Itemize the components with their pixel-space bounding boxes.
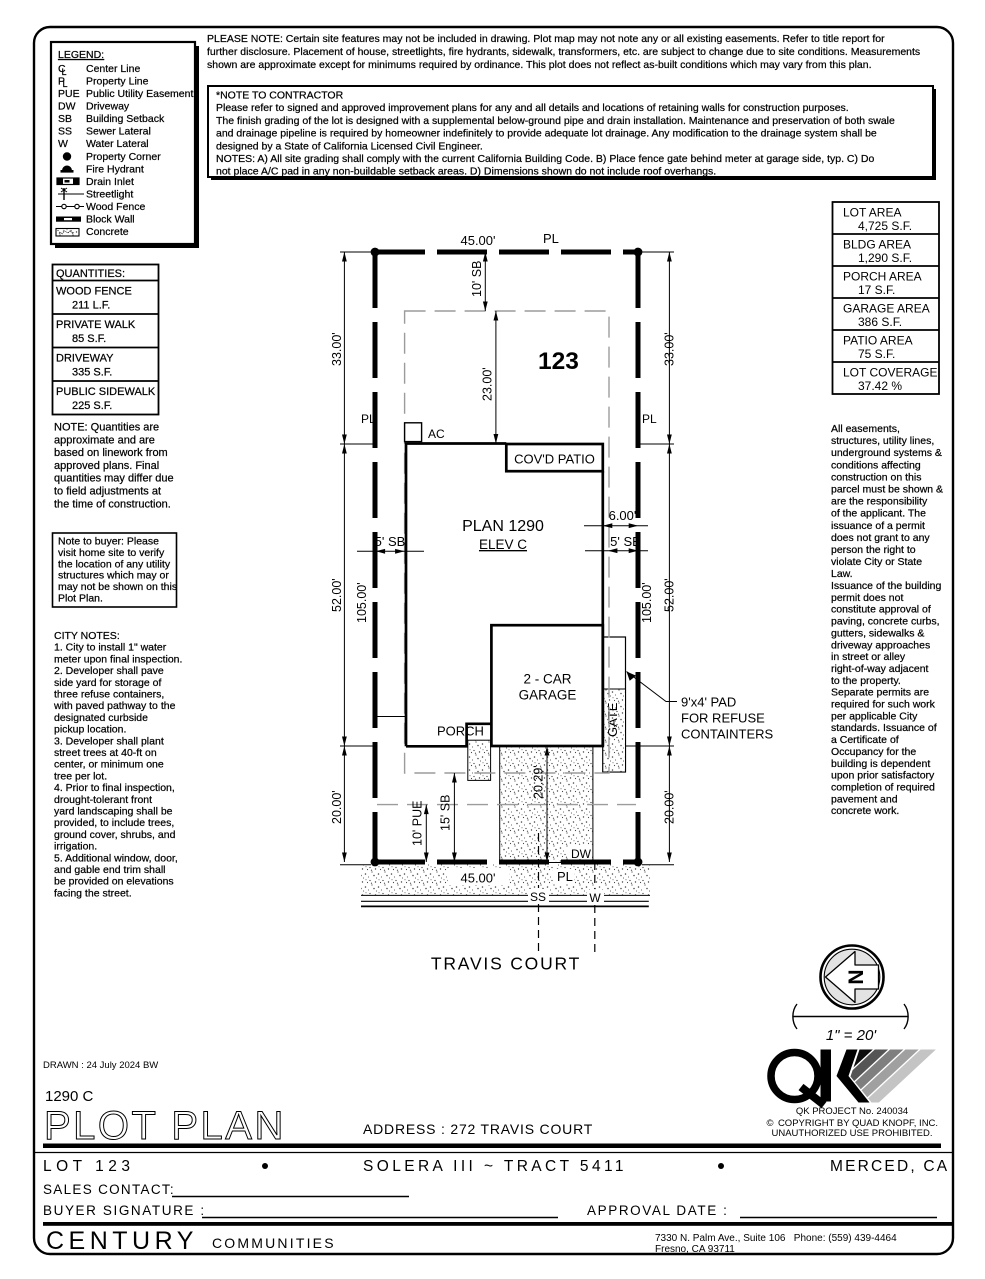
svg-text:GARAGE AREA: GARAGE AREA bbox=[843, 302, 930, 316]
svg-text:pickup location.: pickup location. bbox=[54, 724, 126, 736]
svg-text:construction on this: construction on this bbox=[831, 471, 921, 483]
svg-text:LOT 123: LOT 123 bbox=[43, 1158, 135, 1175]
svg-text:Sewer Lateral: Sewer Lateral bbox=[86, 126, 151, 138]
svg-text:1. City to install 1" water: 1. City to install 1" water bbox=[54, 642, 167, 654]
svg-text:386 S.F.: 386 S.F. bbox=[858, 315, 902, 329]
svg-text:MERCED, CA: MERCED, CA bbox=[830, 1158, 949, 1175]
svg-text:not place A/C pad in any non-b: not place A/C pad in any non-buildable s… bbox=[216, 166, 716, 178]
svg-text:DW: DW bbox=[571, 847, 592, 861]
svg-text:85 S.F.: 85 S.F. bbox=[72, 333, 106, 345]
svg-text:to the property.: to the property. bbox=[831, 675, 901, 687]
svg-text:right-of-way adjacent: right-of-way adjacent bbox=[831, 663, 929, 675]
svg-text:PRIVATE WALK: PRIVATE WALK bbox=[56, 319, 136, 331]
svg-text:QUANTITIES:: QUANTITIES: bbox=[56, 268, 125, 280]
svg-text:per applicable City: per applicable City bbox=[831, 710, 918, 722]
svg-text:designed by a State of Califor: designed by a State of California Licens… bbox=[216, 140, 483, 152]
svg-text:center, or minimum one: center, or minimum one bbox=[54, 759, 164, 771]
svg-text:in street or alley: in street or alley bbox=[831, 651, 906, 663]
svg-text:WOOD FENCE: WOOD FENCE bbox=[56, 286, 132, 298]
svg-text:CITY NOTES:: CITY NOTES: bbox=[54, 630, 120, 642]
svg-text:Issuance of the building: Issuance of the building bbox=[831, 580, 941, 592]
svg-text:NOTES: A) All site grading sh: NOTES: A) All site grading shall comply … bbox=[216, 153, 874, 165]
svg-text:DRIVEWAY: DRIVEWAY bbox=[56, 353, 114, 365]
svg-text:tree per lot.: tree per lot. bbox=[54, 770, 107, 782]
svg-text:W: W bbox=[589, 891, 601, 905]
svg-text:a Certificate of: a Certificate of bbox=[831, 734, 899, 746]
svg-text:yard landscaping shall be: yard landscaping shall be bbox=[54, 806, 173, 818]
svg-text:FOR REFUSE: FOR REFUSE bbox=[681, 711, 765, 726]
svg-text:required for such work: required for such work bbox=[831, 699, 936, 711]
svg-text:conditions affecting: conditions affecting bbox=[831, 459, 921, 471]
svg-text:The finish grading of the lot: The finish grading of the lot is designe… bbox=[216, 115, 895, 127]
svg-text:does not grant to any: does not grant to any bbox=[831, 532, 930, 544]
svg-text:designated curbside: designated curbside bbox=[54, 712, 148, 724]
svg-text:PLAN 1290: PLAN 1290 bbox=[462, 518, 544, 535]
svg-text:AC: AC bbox=[428, 427, 445, 441]
svg-text:6.00': 6.00' bbox=[609, 508, 637, 523]
svg-text:SS: SS bbox=[530, 890, 546, 904]
svg-text:PL: PL bbox=[642, 412, 657, 426]
svg-text:Property Corner: Property Corner bbox=[86, 151, 161, 163]
svg-text:Separate permits are: Separate permits are bbox=[831, 687, 929, 699]
svg-text:completion of required: completion of required bbox=[831, 782, 935, 794]
svg-text:2. Developer shall pave: 2. Developer shall pave bbox=[54, 665, 164, 677]
svg-text:QK PROJECT No. 240034: QK PROJECT No. 240034 bbox=[796, 1106, 908, 1117]
svg-text:1" = 20': 1" = 20' bbox=[826, 1027, 877, 1044]
svg-text:PL: PL bbox=[361, 412, 376, 426]
svg-text:constitute approval of: constitute approval of bbox=[831, 604, 931, 616]
svg-text:may not be shown on this: may not be shown on this bbox=[58, 581, 177, 593]
svg-text:approved plans. Final: approved plans. Final bbox=[54, 460, 159, 472]
svg-text:BUYER SIGNATURE :: BUYER SIGNATURE : bbox=[43, 1203, 206, 1218]
svg-text:PUE: PUE bbox=[58, 88, 80, 100]
svg-text:15' SB: 15' SB bbox=[439, 795, 453, 831]
svg-text:Building Setback: Building Setback bbox=[86, 113, 165, 125]
svg-text:SALES CONTACT:: SALES CONTACT: bbox=[43, 1182, 175, 1197]
svg-text:10' SB: 10' SB bbox=[470, 261, 484, 297]
svg-text:20.29': 20.29' bbox=[532, 765, 546, 799]
svg-text:facing the street.: facing the street. bbox=[54, 887, 132, 899]
svg-text:structures which may or: structures which may or bbox=[58, 570, 169, 582]
svg-text:upon prior satisfactory: upon prior satisfactory bbox=[831, 770, 935, 782]
svg-text:Center Line: Center Line bbox=[86, 63, 140, 75]
svg-text:ELEV C: ELEV C bbox=[479, 537, 527, 552]
svg-text:street trees at 40-ft on: street trees at 40-ft on bbox=[54, 747, 157, 759]
svg-text:Law.: Law. bbox=[831, 568, 853, 580]
svg-text:building is dependent: building is dependent bbox=[831, 758, 930, 770]
svg-text:1290 C: 1290 C bbox=[45, 1088, 94, 1105]
svg-text:CONTAINTERS: CONTAINTERS bbox=[681, 727, 774, 742]
svg-text:20.00': 20.00' bbox=[663, 790, 677, 824]
svg-text:PORCH: PORCH bbox=[437, 724, 484, 739]
svg-text:PL: PL bbox=[557, 869, 573, 884]
svg-text:shown are approximate except f: shown are approximate except for minimum… bbox=[207, 59, 872, 71]
svg-text:APPROVAL DATE :: APPROVAL DATE : bbox=[587, 1203, 729, 1218]
svg-text:17 S.F.: 17 S.F. bbox=[858, 283, 895, 297]
svg-text:COV'D PATIO: COV'D PATIO bbox=[514, 452, 595, 467]
svg-text:W: W bbox=[58, 138, 68, 150]
svg-text:23.00': 23.00' bbox=[481, 367, 495, 401]
svg-text:37.42 %: 37.42 % bbox=[858, 379, 902, 393]
svg-text:paving, concrete curbs,: paving, concrete curbs, bbox=[831, 616, 940, 628]
svg-text:45.00': 45.00' bbox=[460, 233, 495, 248]
svg-text:DRAWN : 24 July 2024 BW: DRAWN : 24 July 2024 BW bbox=[43, 1060, 158, 1071]
svg-text:SOLERA III ~ TRACT 5411: SOLERA III ~ TRACT 5411 bbox=[363, 1158, 627, 1175]
svg-text:CENTURY: CENTURY bbox=[46, 1227, 198, 1255]
svg-text:75 S.F.: 75 S.F. bbox=[858, 347, 895, 361]
svg-text:pavement and: pavement and bbox=[831, 793, 898, 805]
svg-text:All easements,: All easements, bbox=[831, 423, 900, 435]
svg-text:drought-tolerant front: drought-tolerant front bbox=[54, 794, 152, 806]
svg-text:based on linework from: based on linework from bbox=[54, 447, 168, 459]
svg-text:and gable end trim shall: and gable end trim shall bbox=[54, 864, 166, 876]
svg-text:ground cover, shrubs, and: ground cover, shrubs, and bbox=[54, 829, 176, 841]
svg-text:PLOT PLAN: PLOT PLAN bbox=[44, 1104, 286, 1148]
svg-text:52.00': 52.00' bbox=[663, 578, 677, 612]
svg-text:211 L.F.: 211 L.F. bbox=[72, 300, 110, 312]
svg-text:underground systems &: underground systems & bbox=[831, 447, 942, 459]
svg-text:5. Additional window, door,: 5. Additional window, door, bbox=[54, 852, 178, 864]
svg-text:Streetlight: Streetlight bbox=[86, 189, 133, 201]
svg-text:irrigation.: irrigation. bbox=[54, 841, 97, 853]
svg-text:10' PUE: 10' PUE bbox=[411, 801, 425, 846]
svg-text:PATIO AREA: PATIO AREA bbox=[843, 334, 913, 348]
svg-text:Concrete: Concrete bbox=[86, 226, 129, 238]
svg-text:SB: SB bbox=[58, 113, 72, 125]
svg-text:Plot Plan.: Plot Plan. bbox=[58, 593, 103, 605]
svg-text:the time of construction.: the time of construction. bbox=[54, 498, 171, 510]
svg-text:Please refer to signed and app: Please refer to signed and approved impr… bbox=[216, 102, 849, 114]
svg-text:three refuse containers,: three refuse containers, bbox=[54, 689, 164, 701]
svg-text:225 S.F.: 225 S.F. bbox=[72, 400, 112, 412]
svg-text:PORCH AREA: PORCH AREA bbox=[843, 270, 922, 284]
svg-text:45.00': 45.00' bbox=[460, 871, 495, 886]
svg-text:TRAVIS COURT: TRAVIS COURT bbox=[431, 954, 581, 974]
svg-text:LEGEND:: LEGEND: bbox=[58, 49, 104, 61]
svg-text:105.00': 105.00' bbox=[640, 582, 654, 623]
svg-text:ADDRESS : 272 TRAVIS COURT: ADDRESS : 272 TRAVIS COURT bbox=[363, 1121, 593, 1137]
svg-text:UNAUTHORIZED USE PROHIBITED.: UNAUTHORIZED USE PROHIBITED. bbox=[772, 1128, 933, 1139]
svg-text:parcel must be shown &: parcel must be shown & bbox=[831, 484, 943, 496]
svg-text:the location of any utility: the location of any utility bbox=[58, 558, 171, 570]
svg-text:Occupancy for the: Occupancy for the bbox=[831, 746, 916, 758]
svg-text:335 S.F.: 335 S.F. bbox=[72, 367, 112, 379]
svg-text:be provided on elevations: be provided on elevations bbox=[54, 876, 174, 888]
svg-text:4. Prior to final inspection,: 4. Prior to final inspection, bbox=[54, 782, 175, 794]
svg-text:3. Developer shall plant: 3. Developer shall plant bbox=[54, 735, 164, 747]
svg-text:LOT AREA: LOT AREA bbox=[843, 206, 901, 220]
svg-text:are the responsibility: are the responsibility bbox=[831, 496, 928, 508]
svg-text:52.00': 52.00' bbox=[330, 578, 344, 612]
svg-text:Water Lateral: Water Lateral bbox=[86, 138, 149, 150]
svg-text:Fresno, CA 93711: Fresno, CA 93711 bbox=[655, 1244, 735, 1255]
svg-text:33.00': 33.00' bbox=[663, 332, 677, 366]
svg-text:GATE: GATE bbox=[605, 702, 620, 737]
svg-text:violate City or State: violate City or State bbox=[831, 556, 922, 568]
svg-text:visit home site to verify: visit home site to verify bbox=[58, 547, 165, 559]
svg-text:with paved pathway to the: with paved pathway to the bbox=[53, 700, 176, 712]
svg-text:driveway approaches: driveway approaches bbox=[831, 639, 930, 651]
svg-text:Public Utility Easement: Public Utility Easement bbox=[86, 88, 193, 100]
svg-text:standards. Issuance of: standards. Issuance of bbox=[831, 722, 937, 734]
svg-text:105.00': 105.00' bbox=[355, 582, 369, 623]
svg-text:issuance of a permit: issuance of a permit bbox=[831, 520, 925, 532]
svg-text:SS: SS bbox=[58, 126, 72, 138]
svg-text:Note to buyer: Please: Note to buyer: Please bbox=[58, 536, 159, 548]
svg-text:LOT COVERAGE: LOT COVERAGE bbox=[843, 366, 937, 380]
svg-text:4,725 S.F.: 4,725 S.F. bbox=[858, 219, 912, 233]
svg-text:9'x4' PAD: 9'x4' PAD bbox=[681, 695, 736, 710]
svg-text:GARAGE: GARAGE bbox=[519, 688, 577, 703]
svg-text:provided, to include trees,: provided, to include trees, bbox=[54, 817, 174, 829]
svg-text:COMMUNITIES: COMMUNITIES bbox=[212, 1235, 336, 1251]
svg-text:Property Line: Property Line bbox=[86, 76, 149, 88]
svg-text:5' SB: 5' SB bbox=[610, 534, 641, 549]
svg-text:meter upon final inspection.: meter upon final inspection. bbox=[54, 653, 182, 665]
svg-text:Drain Inlet: Drain Inlet bbox=[86, 176, 134, 188]
svg-text:side yard for storage of: side yard for storage of bbox=[54, 677, 161, 689]
svg-text:7330 N. Palm Ave., Suite 106: 7330 N. Palm Ave., Suite 106 Phone: (559… bbox=[655, 1233, 897, 1244]
svg-text:Fire Hydrant: Fire Hydrant bbox=[86, 164, 144, 176]
svg-text:N: N bbox=[845, 969, 868, 984]
svg-text:NOTE: Quantities are: NOTE: Quantities are bbox=[54, 422, 159, 434]
svg-text:20.00': 20.00' bbox=[330, 790, 344, 824]
svg-text:BLDG AREA: BLDG AREA bbox=[843, 238, 911, 252]
svg-text:2 - CAR: 2 - CAR bbox=[523, 672, 571, 687]
svg-text:to field adjustments at: to field adjustments at bbox=[54, 486, 161, 498]
svg-text:PLEASE NOTE: Certain site fea: PLEASE NOTE: Certain site features may n… bbox=[207, 33, 885, 45]
svg-text:Block Wall: Block Wall bbox=[86, 214, 135, 226]
svg-text:DW: DW bbox=[58, 101, 76, 113]
svg-text:PL: PL bbox=[543, 231, 559, 246]
svg-text:structures, utility lines,: structures, utility lines, bbox=[831, 435, 934, 447]
svg-text:quantities may differ due: quantities may differ due bbox=[54, 473, 174, 485]
svg-text:concrete work.: concrete work. bbox=[831, 805, 899, 817]
svg-text:*NOTE TO CONTRACTOR: *NOTE TO CONTRACTOR bbox=[216, 90, 344, 102]
svg-text:further disclosure. Placement: further disclosure. Placement of house, … bbox=[207, 46, 920, 58]
svg-text:Driveway: Driveway bbox=[86, 101, 130, 113]
svg-text:of the applicant. The: of the applicant. The bbox=[831, 508, 926, 520]
svg-text:and drainage pipeline is requi: and drainage pipeline is required by hom… bbox=[216, 128, 877, 140]
svg-text:Wood Fence: Wood Fence bbox=[86, 201, 145, 213]
svg-text:permit does not: permit does not bbox=[831, 592, 903, 604]
svg-text:123: 123 bbox=[538, 348, 579, 375]
svg-text:5' SB: 5' SB bbox=[375, 534, 406, 549]
svg-text:1,290 S.F.: 1,290 S.F. bbox=[858, 251, 912, 265]
svg-text:person the right to: person the right to bbox=[831, 544, 916, 556]
svg-text:PUBLIC SIDEWALK: PUBLIC SIDEWALK bbox=[56, 386, 156, 398]
svg-text:33.00': 33.00' bbox=[330, 332, 344, 366]
svg-text:gutters, sidewalks &: gutters, sidewalks & bbox=[831, 627, 924, 639]
svg-text:approximate and are: approximate and are bbox=[54, 434, 155, 446]
